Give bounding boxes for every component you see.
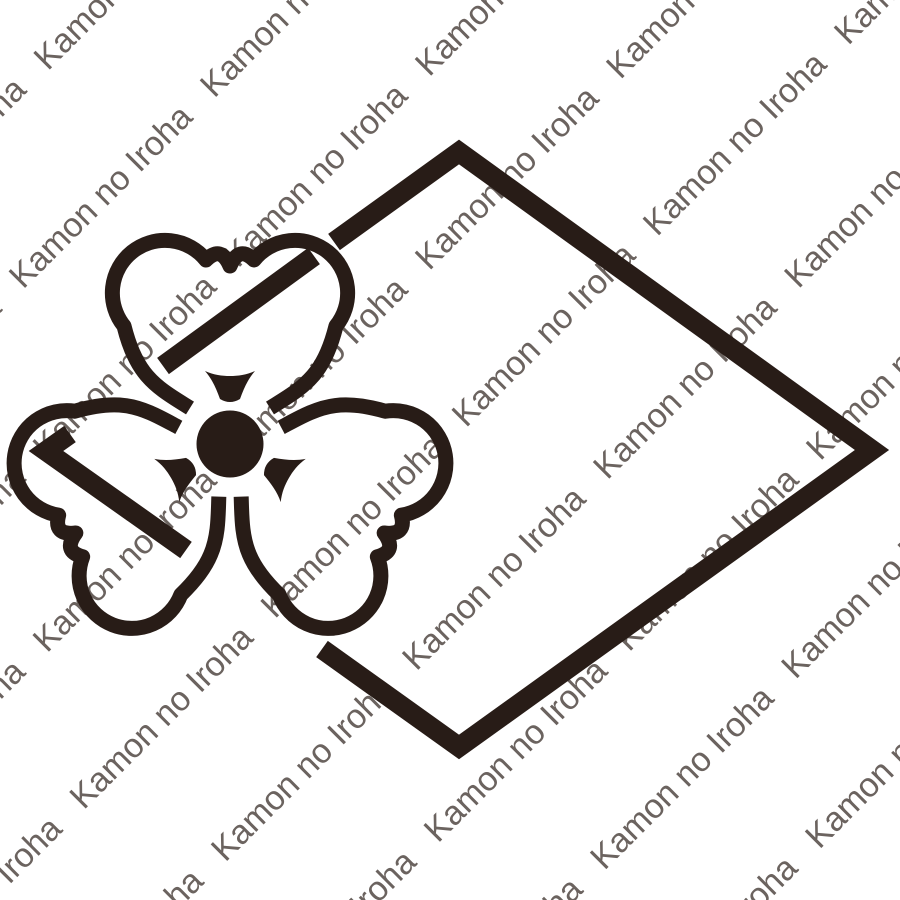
flower-center-circle (197, 411, 264, 478)
diamond-edge-top-right-bottom (322, 152, 872, 747)
stamen-top (205, 371, 255, 402)
petal-lower-right (202, 360, 465, 648)
kamon-stock-image: Kamon no Iroha Kamon no Iroha Kamon no I… (0, 0, 900, 900)
kamon-crest (0, 0, 900, 900)
diamond-edge-inside-top-petal (163, 256, 314, 366)
